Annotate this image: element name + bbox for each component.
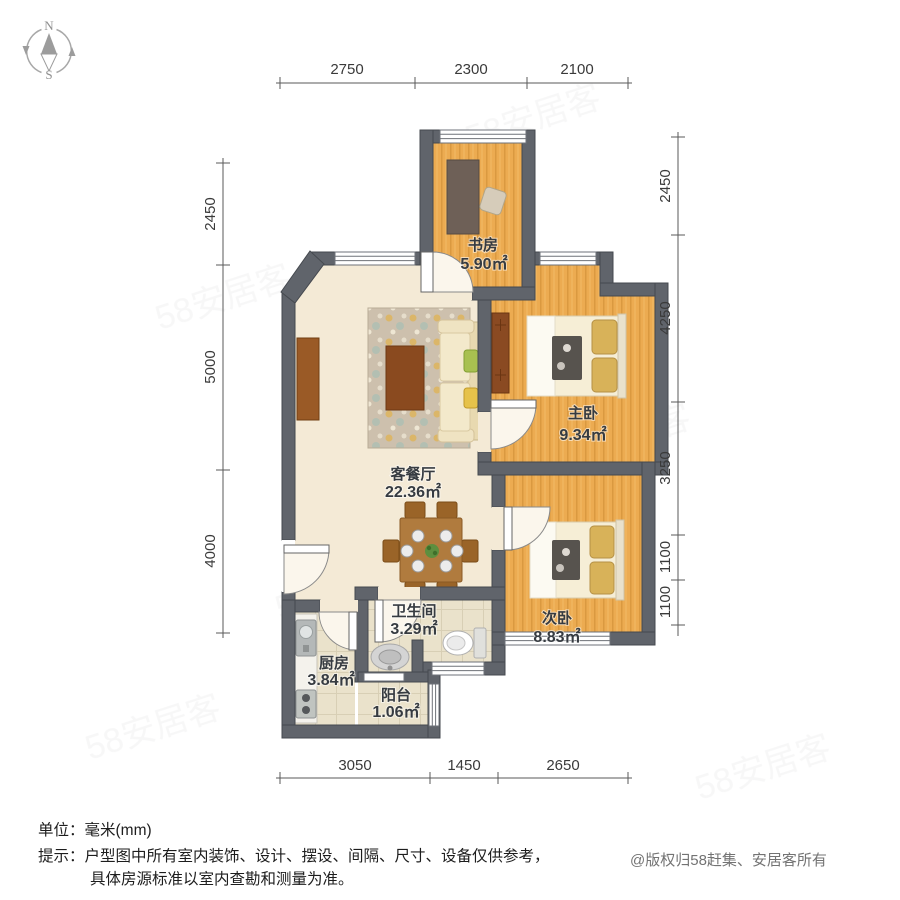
ruler-bottom: 3050 1450 2650 [276, 757, 632, 784]
kitchen-area: 3.84㎡ [307, 670, 354, 689]
living-label: 客餐厅 [389, 465, 435, 483]
second-area: 8.83㎡ [533, 627, 580, 646]
dim-top-3: 2100 [560, 61, 593, 78]
tip-note-line1: 提示：户型图中所有室内装饰、设计、摆设、间隔、尺寸、设备仅供参考， [38, 844, 550, 866]
floorplan-page: { "compass": { "north": "N", "south": "S… [0, 0, 900, 900]
master-label: 主卧 [568, 404, 598, 422]
bath-window [432, 662, 484, 675]
living-window [335, 252, 415, 265]
master-floor-notch [535, 265, 600, 305]
balcony-area: 1.06㎡ [372, 702, 419, 721]
study-area: 5.90㎡ [460, 254, 507, 273]
compass-south-label: S [45, 67, 52, 82]
study-window [440, 130, 526, 143]
master-bed [527, 314, 626, 398]
master-area: 9.34㎡ [559, 425, 606, 444]
tip-note-line2: 具体房源标准以室内查勘和测量为准。 [90, 867, 354, 889]
dim-bottom-3: 2650 [546, 757, 579, 774]
dim-bottom-1: 3050 [338, 757, 371, 774]
ruler-left: 2450 5000 4000 [202, 158, 230, 638]
balcony-label: 阳台 [381, 686, 411, 704]
bed-quilt-decor [552, 336, 582, 380]
dim-top-1: 2750 [330, 61, 363, 78]
compass-arrow-right [69, 47, 76, 56]
kitchen-label: 厨房 [319, 654, 349, 672]
study-label: 书房 [468, 236, 498, 254]
sofa-pillow-green [464, 350, 478, 372]
compass-needle-north [41, 33, 57, 54]
dim-left-3: 4000 [202, 534, 219, 567]
table-plant [425, 544, 439, 558]
master-wardrobe [492, 313, 509, 393]
sofa-pillow-yellow [464, 388, 478, 408]
second-label: 次卧 [542, 609, 572, 627]
dim-right-3: 3250 [657, 451, 674, 484]
second-bed [530, 520, 624, 600]
compass-icon: N S [23, 18, 76, 82]
coffee-table [386, 346, 424, 410]
floorplan-drawing: 58安居客 58安居客 58安居客 58安居客 58安居客 58安居客 [0, 0, 900, 900]
kitchen-counter [295, 614, 317, 723]
dim-right-4: 1100 [657, 541, 674, 573]
dim-top-2: 2300 [454, 61, 487, 78]
dim-bottom-2: 1450 [447, 757, 480, 774]
compass-arrow-left [23, 46, 30, 55]
bath-area: 3.29㎡ [390, 619, 437, 638]
watermark-text: 58安居客 [691, 728, 836, 807]
dim-left-2: 5000 [202, 350, 219, 383]
unit-note: 单位：毫米(mm) [38, 818, 152, 840]
living-area: 22.36㎡ [385, 482, 441, 501]
pillow [590, 562, 614, 594]
pillow [590, 526, 614, 558]
balcony-top-window [364, 673, 404, 681]
dim-right-5: 1100 [657, 586, 674, 618]
dim-right-1: 2450 [657, 169, 674, 202]
dim-left-1: 2450 [202, 197, 219, 230]
master-window [540, 252, 596, 265]
washbasin [371, 644, 409, 671]
tv-cabinet [297, 338, 319, 420]
balcony-side-window [429, 684, 439, 726]
compass-north-label: N [44, 18, 54, 33]
bed-quilt-decor [552, 540, 580, 580]
bath-label: 卫生间 [391, 602, 436, 620]
dim-right-2: 4250 [657, 301, 674, 334]
pillow [592, 320, 617, 354]
copyright-note: @版权归58赶集、安居客所有 [630, 849, 827, 870]
watermark-text: 58安居客 [81, 688, 226, 767]
pillow [592, 358, 617, 392]
